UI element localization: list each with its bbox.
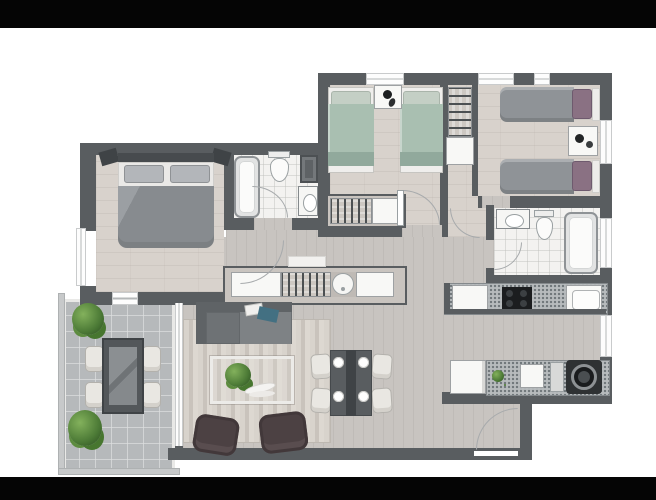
- window: [76, 228, 86, 286]
- dining-chair: [371, 387, 393, 413]
- coffee-table: [210, 356, 294, 404]
- bed-duvet: [400, 104, 443, 156]
- door-opening: [254, 218, 292, 230]
- nightstand: [568, 126, 598, 156]
- pillow: [124, 165, 164, 183]
- dresser: [446, 137, 474, 165]
- counter-edge: [444, 309, 606, 314]
- wall: [175, 293, 183, 303]
- dining-chair: [371, 353, 393, 379]
- bathtub: [564, 212, 598, 274]
- dining-chair: [310, 353, 332, 379]
- table-top: [109, 347, 137, 405]
- armchair: [258, 410, 309, 454]
- washing-machine: [566, 360, 602, 394]
- single-bed: [400, 87, 443, 173]
- entry-threshold: [474, 451, 518, 456]
- pillow: [170, 165, 210, 183]
- counter-plant: [492, 370, 504, 382]
- window: [600, 315, 612, 357]
- dining-chair: [310, 387, 332, 413]
- kitchen-cabinet: [452, 285, 488, 311]
- door-leaf: [398, 191, 403, 225]
- door-opening: [402, 225, 442, 237]
- burner: [520, 290, 527, 297]
- terrace-shrub: [68, 410, 102, 446]
- toilet-tank: [534, 210, 554, 217]
- decor-cup: [586, 141, 593, 148]
- basin-drain: [341, 287, 345, 291]
- sofa-arm: [196, 302, 206, 344]
- letterbox-bottom: [0, 477, 656, 500]
- window: [600, 218, 612, 268]
- wardrobe-cabinet: [356, 272, 394, 297]
- burner: [520, 300, 527, 307]
- basin-circle: [332, 273, 354, 295]
- washbasin-vanity: [496, 209, 530, 229]
- place-setting: [358, 357, 369, 368]
- bathroom-shelf: [300, 155, 318, 183]
- wall: [175, 446, 183, 454]
- hanging-clothes: [330, 198, 372, 224]
- toilet-tank: [268, 151, 290, 158]
- window: [478, 73, 514, 85]
- bed-duvet: [500, 87, 574, 122]
- bed-blanket-fold: [400, 152, 443, 166]
- sofa-chaise: [206, 312, 240, 344]
- nightstand: [374, 85, 402, 109]
- armchair: [191, 413, 240, 457]
- single-bed: [500, 158, 600, 196]
- door-threshold: [288, 256, 326, 267]
- pillow: [572, 161, 592, 191]
- master-bed-headboard: [118, 153, 214, 162]
- cutting-board: [550, 362, 564, 392]
- washer-drum: [578, 371, 590, 383]
- sofa: [196, 302, 292, 344]
- place-setting: [333, 391, 344, 402]
- place-setting: [333, 357, 344, 368]
- floor-plan-image: [0, 0, 656, 500]
- wall: [486, 275, 612, 283]
- window: [112, 292, 138, 305]
- terrace-shrub: [72, 303, 104, 335]
- prep-sink: [520, 364, 544, 388]
- burner: [506, 300, 513, 307]
- table-plant: [225, 363, 251, 387]
- cooktop: [502, 287, 532, 310]
- sink-basin: [505, 214, 524, 228]
- single-bed: [500, 86, 600, 124]
- burner: [506, 290, 513, 297]
- outdoor-table: [102, 338, 144, 414]
- sink-basin: [303, 194, 317, 212]
- dining-table: [330, 350, 372, 416]
- terrace-parapet: [58, 468, 180, 475]
- terrace-parapet: [58, 293, 65, 475]
- window: [600, 120, 612, 164]
- hanging-clothes: [281, 272, 331, 297]
- outdoor-chair: [142, 382, 161, 408]
- laundry-basin: [331, 272, 356, 297]
- pillow: [572, 89, 592, 119]
- wall: [520, 394, 532, 452]
- sliding-door: [175, 301, 183, 450]
- wall: [318, 73, 612, 85]
- bed-duvet: [500, 159, 574, 194]
- kitchen-sink: [566, 285, 602, 311]
- bathtub-basin: [569, 217, 593, 269]
- decor-feather: [249, 390, 275, 398]
- decor-carafe: [575, 134, 584, 143]
- refrigerator: [450, 360, 486, 394]
- outdoor-chair: [142, 346, 161, 372]
- place-setting: [358, 391, 369, 402]
- sink-basin: [572, 290, 600, 310]
- bed-blanket-fold: [328, 152, 374, 166]
- bed-sheet: [592, 88, 600, 121]
- window: [366, 73, 404, 85]
- master-bed-duvet: [118, 186, 214, 248]
- single-bed: [328, 87, 374, 173]
- wall: [80, 143, 96, 231]
- letterbox-top: [0, 0, 656, 28]
- table-runner: [346, 350, 356, 416]
- washbasin-vanity: [298, 186, 318, 216]
- wall: [486, 205, 494, 240]
- bed-sheet: [592, 160, 600, 193]
- bed-duvet: [328, 104, 374, 156]
- window: [534, 73, 550, 85]
- shelf-closet: [448, 87, 472, 137]
